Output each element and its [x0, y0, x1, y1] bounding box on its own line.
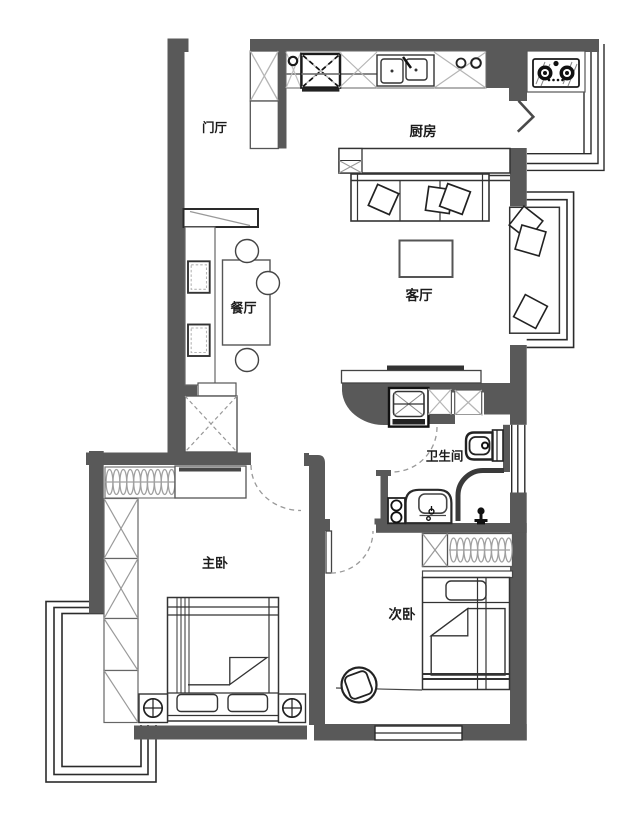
svg-text:餐厅: 餐厅 — [229, 301, 256, 316]
svg-text:客厅: 客厅 — [405, 287, 433, 303]
svg-text:厨房: 厨房 — [410, 123, 437, 139]
svg-text:卫生间: 卫生间 — [426, 449, 464, 464]
svg-text:次卧: 次卧 — [389, 606, 416, 622]
svg-text:门厅: 门厅 — [202, 120, 228, 135]
svg-text:主卧: 主卧 — [202, 556, 228, 571]
